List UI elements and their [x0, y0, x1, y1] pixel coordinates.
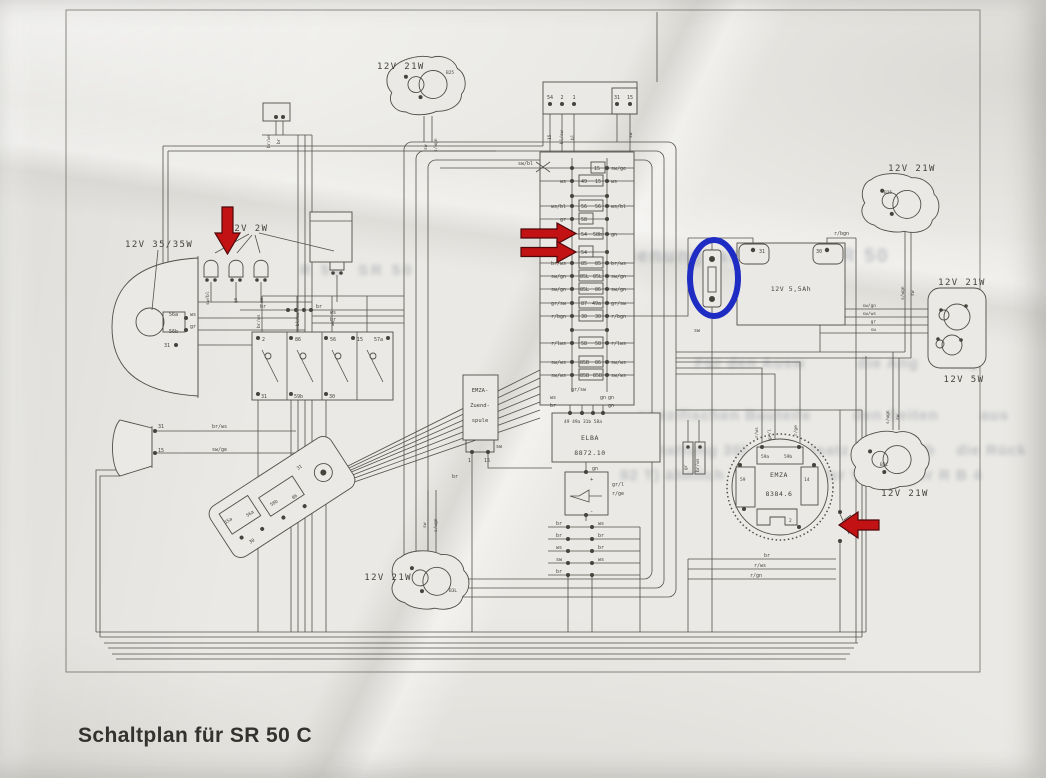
svg-text:58: 58 [595, 341, 601, 347]
svg-text:br: br [556, 533, 562, 539]
socket-code: B3L [880, 462, 888, 468]
wire-label: 15 [547, 134, 553, 140]
alternator-terminal: 59a [761, 454, 769, 460]
wire-label: sw/bl [205, 291, 211, 305]
wire-label: br [452, 474, 458, 480]
svg-text:r/bgn: r/bgn [611, 314, 626, 320]
ignition-lock: 15a 56a 58b 86 30 31 [205, 433, 358, 562]
elba-label: ELBA [581, 434, 599, 442]
wire-label: ws [260, 297, 265, 303]
indicator-label: 12V 21W [888, 164, 936, 174]
rectifier-minus: - [590, 509, 593, 515]
elba-terminals: 49 49a 31b 58a [564, 419, 602, 425]
diagram-caption: Schaltplan für SR 50 C [78, 724, 312, 748]
wire-label: bl [570, 134, 576, 140]
wire-label: sw/gn [862, 303, 876, 309]
wire-label: bl/sw [295, 312, 301, 326]
mini-terminal-strip: br ws br br ws br sw ws br [556, 521, 604, 577]
svg-text:sw/gn: sw/gn [611, 287, 626, 293]
wire-label: br/ws [266, 134, 272, 148]
wire-label: sw/bl [518, 161, 533, 167]
flasher-terminal: 1 [572, 95, 575, 101]
battery: 12V 5,5Ah 31 30 r/bgn [737, 231, 849, 325]
svg-text:ws: ws [598, 521, 604, 527]
svg-text:sw/gn: sw/gn [551, 274, 566, 280]
svg-text:sw/ge: sw/ge [611, 166, 626, 172]
flasher-terminal: 15 [627, 95, 633, 101]
svg-text:58: 58 [581, 217, 587, 223]
svg-text:gr: gr [560, 217, 566, 223]
indicator-label: 12V 21W [364, 573, 412, 583]
svg-text:sw/ws: sw/ws [611, 373, 626, 379]
svg-text:85L: 85L [580, 287, 589, 293]
switch-terminal: 15 [357, 337, 363, 343]
wire-label: s/wgn [900, 286, 906, 300]
socket-code: B25 [884, 190, 892, 196]
connector-2pin-mid: gr br/ws [683, 442, 705, 474]
svg-text:br: br [556, 521, 562, 527]
alternator-label: 8384.6 [765, 490, 792, 498]
alternator-terminal: 2 [789, 518, 792, 524]
wire-label: gr [190, 324, 196, 330]
switch-terminal: 31 [261, 394, 267, 400]
indicator-label: 12V 21W [377, 62, 425, 72]
wire-label: sw [496, 444, 503, 450]
wire-label: s/wgn [885, 410, 891, 424]
wire-label: sw/ws [862, 311, 876, 317]
indicator-label: 12V 21W [881, 489, 929, 499]
svg-text:r/lws: r/lws [611, 341, 626, 347]
svg-text:58: 58 [581, 341, 587, 347]
alternator-terminal: 59b [784, 454, 792, 460]
wiring-harness [96, 12, 934, 659]
wire-label: sw [896, 414, 901, 420]
indicator-rear-left: 12V 21W B3L sw s/wgn [364, 518, 471, 613]
svg-text:br: br [598, 533, 604, 539]
wire-label: r/ws [754, 427, 760, 438]
svg-text:r/lws: r/lws [551, 341, 566, 347]
wire-label: gn [608, 395, 614, 401]
svg-text:gr/sw: gr/sw [551, 301, 567, 307]
svg-text:86: 86 [595, 287, 601, 293]
svg-text:49a: 49a [592, 301, 601, 307]
svg-text:ws: ws [598, 557, 604, 563]
headlight-label: 12V 35/35W [125, 240, 193, 250]
indicator-front-left: 12V 21W B25 sw s/wgn [377, 51, 468, 152]
svg-text:ws: ws [611, 179, 617, 185]
indicator-front-right: 12V 21W B25 s/wgn sw [859, 164, 942, 300]
horn: 31 15 br/ws sw/ge [113, 420, 228, 476]
svg-text:sw/ws: sw/ws [551, 360, 566, 366]
switch-terminal: 57a [374, 337, 383, 343]
coil-terminal: 15 [484, 458, 490, 464]
wire-label: gn [234, 297, 239, 303]
svg-text:sw/gn: sw/gn [551, 287, 566, 293]
wire-label: br [276, 138, 282, 144]
battery-terminal: 30 [816, 249, 822, 255]
svg-text:ws/bl: ws/bl [611, 204, 626, 210]
svg-text:br: br [330, 317, 336, 323]
svg-text:r/bgn: r/bgn [551, 314, 566, 320]
headlight-terminal: 31 [164, 343, 170, 349]
svg-text:56: 56 [581, 204, 587, 210]
wire-label: sw [424, 144, 429, 150]
tail-brake-light: 12V 21W 12V 5W sw/gn sw/ws gr sw [862, 278, 986, 385]
svg-text:85B: 85B [580, 360, 589, 366]
alternator-terminal: 14 [804, 477, 810, 483]
socket-code: B3L [449, 588, 457, 594]
wire-label: s/wgn [433, 518, 439, 532]
alternator-terminal: 59 [740, 477, 746, 483]
coil-label: EMZA- [472, 388, 489, 394]
wire-label: gn [600, 395, 606, 401]
fuse: sw [694, 250, 721, 334]
wire-label: ws [550, 395, 556, 401]
horn-terminal: 15 [158, 448, 164, 454]
headlight: 12V 35/35W 56a 56b 31 ws gr [112, 240, 198, 398]
svg-text:87: 87 [581, 301, 587, 307]
svg-text:br: br [260, 304, 266, 310]
flasher-box: 54 2 1 31 15 15 bl/sw bl sw [543, 82, 637, 144]
terminal-strip: sw/bl 15sw/ge ws4915ws ws/bl5656ws/bl gr… [440, 152, 634, 405]
svg-text:ws: ws [330, 310, 336, 316]
tail-light-label: 12V 5W [944, 375, 985, 385]
svg-text:30: 30 [581, 314, 587, 320]
svg-text:85L: 85L [580, 274, 589, 280]
svg-text:br: br [556, 569, 562, 575]
battery-label: 12V 5,5Ah [771, 285, 812, 293]
wire-label: gr/l [612, 482, 624, 488]
wire-label: s/wgn [433, 138, 439, 152]
svg-text:sw: sw [556, 557, 563, 563]
wire-label: bl/sw [559, 130, 565, 144]
horn-terminal: 31 [158, 424, 164, 430]
svg-text:86: 86 [595, 360, 601, 366]
wire-label: gr/l [767, 429, 773, 440]
svg-text:br/ws: br/ws [611, 261, 626, 267]
headlight-terminal: 56b [169, 329, 178, 335]
wire-label: sw/ge [212, 447, 227, 453]
svg-text:85B: 85B [580, 373, 589, 379]
svg-text:ws: ws [560, 179, 566, 185]
coil-label: spule [472, 418, 489, 424]
switch-terminal: 30 [329, 394, 335, 400]
alternator: 59a 59b 59 14 2 EMZA 8384.6 r/ws gr/l r/… [727, 425, 833, 540]
switch-terminal: 86 [295, 337, 301, 343]
svg-text:r/ws: r/ws [754, 563, 766, 569]
svg-text:ws: ws [556, 545, 562, 551]
wire-label: gn [608, 403, 614, 409]
wire-label: sw [871, 328, 877, 333]
wire-label: r/bgn [834, 231, 849, 237]
svg-text:54: 54 [581, 232, 587, 238]
coil-terminal: 1 [468, 458, 471, 464]
svg-text:br: br [764, 553, 770, 559]
svg-text:85: 85 [595, 261, 601, 267]
switch-terminal: 59b [294, 394, 303, 400]
svg-text:56: 56 [595, 204, 601, 210]
svg-text:r/gn: r/gn [750, 573, 762, 579]
wire-label: sw [629, 132, 634, 138]
svg-text:sw/ws: sw/ws [551, 373, 566, 379]
wire-label: gn [592, 466, 598, 472]
wire-label: gr/sw [571, 387, 587, 393]
red-arrow-left-icon [839, 512, 879, 538]
svg-text:br: br [316, 304, 322, 310]
battery-terminal: 31 [759, 249, 765, 255]
svg-text:br: br [598, 545, 604, 551]
switch-terminal: 2 [262, 337, 265, 343]
brake-light-label: 12V 21W [938, 278, 986, 288]
svg-text:85L: 85L [593, 274, 602, 280]
elba-label: 8872.10 [574, 449, 606, 457]
wire-label: gr [871, 320, 877, 325]
svg-text:15: 15 [595, 179, 601, 185]
wire-label: br/ws [695, 458, 701, 472]
wiring-diagram-svg: 12V 35/35W 56a 56b 31 ws gr 31 15 br/ws … [0, 0, 1046, 778]
connector-2pin-top: br/ws br [263, 103, 290, 148]
indicator-rear-right: 12V 21W B3L s/wgn sw [849, 410, 932, 499]
wire-label: ws [190, 312, 196, 318]
coil-label: Zuend- [470, 403, 490, 409]
wire-label: br [550, 403, 556, 409]
wire-label: sw [911, 290, 916, 296]
svg-text:ws/bl: ws/bl [551, 204, 566, 210]
wire-label: br/ws [212, 424, 227, 430]
wire-label: sw [694, 328, 701, 334]
diagram-frame [66, 10, 980, 672]
svg-text:85: 85 [581, 261, 587, 267]
svg-text:sw/gn: sw/gn [611, 274, 626, 280]
svg-text:sw/ws: sw/ws [611, 360, 626, 366]
socket-code: B25 [446, 70, 454, 76]
switch-terminal: 56 [330, 337, 336, 343]
svg-text:30: 30 [595, 314, 601, 320]
svg-text:54: 54 [581, 250, 587, 256]
flasher-terminal: 31 [614, 95, 620, 101]
wire-label: r/ge [793, 425, 799, 436]
wire-label: gr [684, 464, 689, 470]
wire-label: r/ge [612, 491, 624, 497]
svg-text:58b: 58b [593, 232, 602, 238]
svg-text:gn: gn [611, 232, 617, 238]
flasher-terminal: 54 [547, 95, 553, 101]
svg-text:49: 49 [581, 179, 587, 185]
flasher-terminal: 2 [560, 95, 563, 101]
rectifier: + - gr/l r/ge gn [565, 466, 624, 517]
switch-cluster: 2 86 56 15 57a 31 59b 30 br/ws bl/sw ws [252, 312, 393, 400]
wire-label: sw [423, 522, 428, 528]
alternator-label: EMZA [770, 471, 788, 479]
svg-text:gr/sw: gr/sw [611, 301, 627, 307]
headlight-terminal: 56a [169, 312, 178, 318]
wire-label: br/ws [256, 314, 262, 328]
svg-text:85B: 85B [593, 373, 602, 379]
svg-text:15: 15 [594, 166, 600, 172]
